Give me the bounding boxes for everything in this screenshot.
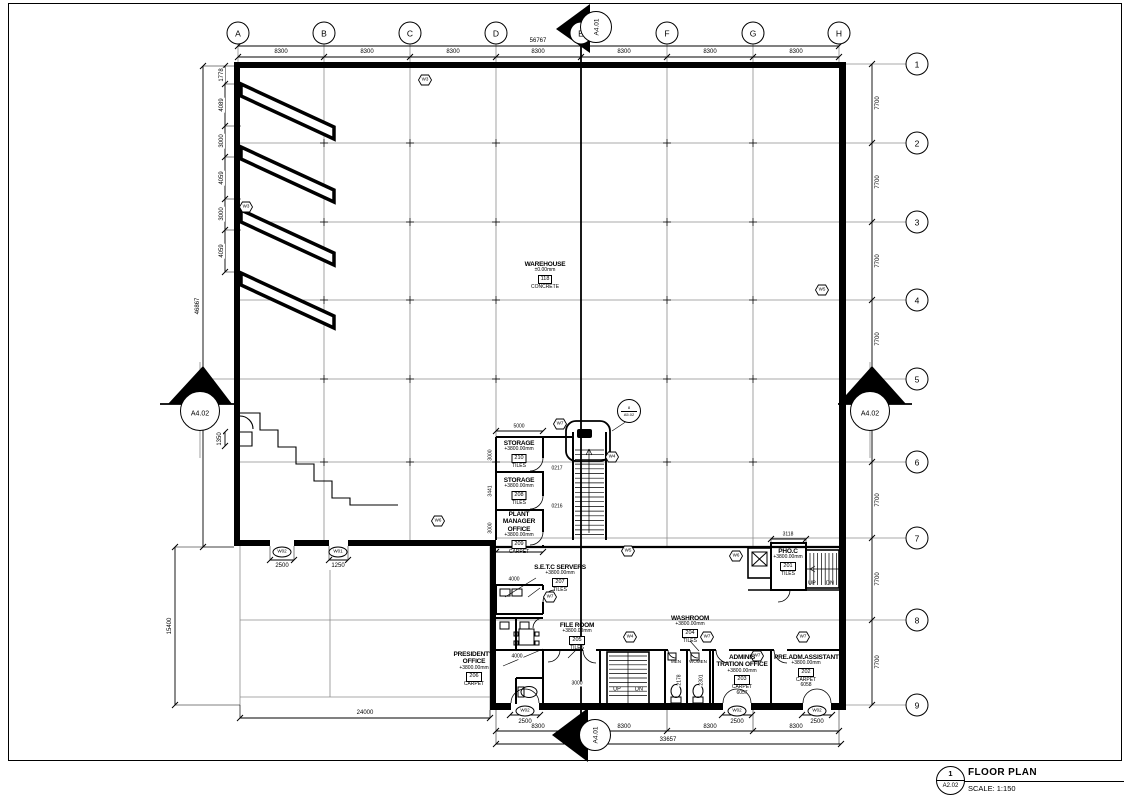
dimension-label: 8300 xyxy=(616,49,631,55)
dimension-label: 2301 xyxy=(700,673,705,686)
wall-type-label: W3 xyxy=(243,205,250,210)
grid-bubble-column: B xyxy=(313,22,336,45)
dimension-label: 7700 xyxy=(875,253,881,268)
grid-bubble-row: 2 xyxy=(906,132,929,155)
room-label-storage-210: STORAGE +3800.00mm 210 TILES xyxy=(496,440,543,469)
wall-type-label: W5 xyxy=(819,288,826,293)
room-number: 118 xyxy=(538,275,553,284)
wall-type-label: W3 xyxy=(422,78,429,83)
drawing-linework xyxy=(0,0,1130,811)
dimension-label: 0216 xyxy=(550,505,563,510)
wall-type-marker: W3 xyxy=(239,202,253,213)
dimension-label: 8300 xyxy=(359,49,374,55)
room-finish: TILES xyxy=(496,501,543,507)
wall-type-label: W6 xyxy=(435,519,442,524)
grid-row-label: 7 xyxy=(915,533,920,543)
wall-type-label: W7 xyxy=(547,595,554,600)
section-marker-right-label: A4.02 xyxy=(861,411,879,418)
wall-type-marker: W7 xyxy=(796,632,810,643)
women-washroom-label: WOMEN xyxy=(689,660,707,665)
room-name: PRESIDENT'S OFFICE xyxy=(451,651,497,666)
dimension-label: 0217 xyxy=(550,467,563,472)
stair-up-label: UP xyxy=(613,687,621,693)
dimension-label: 1350 xyxy=(217,431,223,446)
grid-column-label: B xyxy=(321,28,327,38)
door-tag: W01 xyxy=(329,547,348,558)
door-tag: W02 xyxy=(273,547,292,558)
wall-type-label: W5 xyxy=(625,549,632,554)
room-finish: TILES xyxy=(665,639,715,645)
room-label-phoc: PHO.C +3800.00mm 201 TILES xyxy=(770,548,806,577)
wall-type-label: W7 xyxy=(557,422,564,427)
section-marker-left-label: A4.02 xyxy=(191,411,209,418)
grid-column-label: F xyxy=(664,28,669,38)
grid-column-label: D xyxy=(493,28,499,38)
dimension-label: 7700 xyxy=(875,331,881,346)
grid-bubble-row: 7 xyxy=(906,527,929,550)
dimension-label: 46867 xyxy=(195,297,201,316)
room-label-pre-adm-assistant: PRE.ADM.ASSISTANT +3800.00mm 202 CARPET … xyxy=(774,654,838,689)
grid-bubble-row: 9 xyxy=(906,694,929,717)
grid-column-label: H xyxy=(836,28,842,38)
door-tag: W02 xyxy=(516,706,535,717)
room-finish: TILES xyxy=(552,646,602,652)
wall-type-label: W7 xyxy=(800,635,807,640)
wall-type-marker: W6 xyxy=(729,551,743,562)
dimension-label: 2500 xyxy=(729,719,744,725)
room-finish: TILES xyxy=(770,572,806,578)
dimension-label: 7700 xyxy=(875,492,881,507)
room-label-setc-servers: S.E.T.C SERVERS +3800.00mm 207 TILES xyxy=(531,564,589,593)
room-number: 210 xyxy=(511,454,526,463)
grid-bubble-row: 6 xyxy=(906,451,929,474)
grid-row-label: 1 xyxy=(915,59,920,69)
dimension-label: 33657 xyxy=(659,737,678,743)
drawing-title: FLOOR PLAN xyxy=(968,767,1037,778)
dimension-label: 3118 xyxy=(782,533,795,538)
wall-type-marker: W3 xyxy=(418,75,432,86)
grid-row-label: 4 xyxy=(915,295,920,305)
grid-bubble-row: 5 xyxy=(906,368,929,391)
door-tag: W02 xyxy=(728,706,747,717)
dimension-label: 8300 xyxy=(702,724,717,730)
grid-bubble-column: C xyxy=(399,22,422,45)
drawing-number: 1 xyxy=(937,767,964,781)
dimension-label: 8300 xyxy=(616,724,631,730)
room-number: 202 xyxy=(798,668,813,677)
grid-bubble-column: A xyxy=(227,22,250,45)
dimension-label: 8300 xyxy=(445,49,460,55)
wall-type-marker: W5 xyxy=(621,546,635,557)
dimension-label: 2178 xyxy=(678,673,683,686)
dimension-label: 8300 xyxy=(702,49,717,55)
stair-detail-callout: 8 A5.02 xyxy=(617,399,641,423)
grid-column-label: G xyxy=(750,28,757,38)
dimension-label: 3000 xyxy=(570,682,583,687)
room-carpet-code: 6057 xyxy=(716,691,768,697)
dimension-label: 1778 xyxy=(219,67,225,82)
room-number: 204 xyxy=(682,629,697,638)
room-label-storage-208: STORAGE +3800.00mm 208 TILES xyxy=(496,477,543,506)
dimension-label: 8300 xyxy=(273,49,288,55)
stair-up-label: UP xyxy=(808,581,816,587)
grid-row-label: 8 xyxy=(915,615,920,625)
grid-row-label: 6 xyxy=(915,457,920,467)
door-tag-label: W02 xyxy=(277,550,286,555)
floor-plan-sheet: ABCDEFGH 123456789 830083008300830083008… xyxy=(0,0,1130,811)
room-finish: CONCRETE xyxy=(515,285,575,291)
wall-type-label: W6 xyxy=(733,554,740,559)
grid-bubble-row: 3 xyxy=(906,211,929,234)
drawing-scale: SCALE: 1:150 xyxy=(968,784,1016,793)
room-finish: CARPET xyxy=(497,550,542,556)
dimension-label: 2500 xyxy=(809,719,824,725)
room-number: 209 xyxy=(511,540,526,549)
dimension-label: 56767 xyxy=(529,38,548,44)
grid-bubble-column: F xyxy=(656,22,679,45)
room-label-plant-manager-office: PLANT MANAGER OFFICE +3800.00mm 209 CARP… xyxy=(497,511,542,555)
grid-column-label: C xyxy=(407,28,413,38)
wall-type-marker: W4 xyxy=(605,452,619,463)
grid-bubble-column: D xyxy=(485,22,508,45)
dimension-label: 8300 xyxy=(530,724,545,730)
dimension-label: 4089 xyxy=(219,97,225,112)
dimension-label: 24000 xyxy=(356,710,375,716)
sheet-reference: A2.02 xyxy=(937,781,964,792)
room-finish: TILES xyxy=(531,588,589,594)
room-number: 208 xyxy=(511,491,526,500)
wall-type-label: W4 xyxy=(627,635,634,640)
dimension-label: 7700 xyxy=(875,571,881,586)
room-label-washroom: WASHROOM +3800.00mm 204 TILES xyxy=(665,615,715,644)
dimension-label: 4000 xyxy=(510,655,523,660)
door-tag-label: W01 xyxy=(333,550,342,555)
dimension-label: 4059 xyxy=(219,170,225,185)
grid-row-label: 9 xyxy=(915,700,920,710)
room-label-administration-office: ADMINIS TRATION OFFICE +3800.00mm 203 CA… xyxy=(716,654,768,697)
wall-type-marker: W5 xyxy=(815,285,829,296)
dimension-label: 3441 xyxy=(489,484,494,497)
door-tag-label: W02 xyxy=(812,709,821,714)
dimension-label: 8300 xyxy=(788,724,803,730)
door-tag-label: W02 xyxy=(520,709,529,714)
room-label-presidents-office: PRESIDENT'S OFFICE +3800.00mm 206 CARPET xyxy=(451,651,497,688)
dimension-label: 3000 xyxy=(219,133,225,148)
room-carpet-code: 6058 xyxy=(774,683,838,689)
grid-bubble-row: 1 xyxy=(906,53,929,76)
callout-sheet: A5.02 xyxy=(618,412,640,417)
dimension-label: 7700 xyxy=(875,95,881,110)
room-number: 201 xyxy=(780,562,795,571)
dimension-label: 5000 xyxy=(512,425,525,430)
grid-row-label: 3 xyxy=(915,217,920,227)
dimension-label: 15400 xyxy=(167,617,173,636)
wall-type-marker: W7 xyxy=(553,419,567,430)
dimension-label: 3000 xyxy=(489,448,494,461)
men-washroom-label: MEN xyxy=(671,660,681,665)
dimension-label: 3000 xyxy=(219,206,225,221)
room-label-file-room: FILE ROOM +3800.00mm 205 TILES xyxy=(552,622,602,651)
title-block: 1 A2.02 FLOOR PLAN SCALE: 1:150 xyxy=(930,763,1128,803)
room-number: 205 xyxy=(569,636,584,645)
dimension-label: 2500 xyxy=(274,563,289,569)
title-underline xyxy=(964,781,1124,782)
drawing-number-bubble: 1 A2.02 xyxy=(936,766,965,795)
room-finish: CARPET xyxy=(451,682,497,688)
grid-bubble-column: H xyxy=(828,22,851,45)
room-label-warehouse: WAREHOUSE ±0.00mm 118 CONCRETE xyxy=(515,261,575,290)
room-number: 207 xyxy=(552,578,567,587)
dimension-label: 7700 xyxy=(875,654,881,669)
stair-dn-label: DN xyxy=(635,687,643,693)
grid-bubble-column: G xyxy=(742,22,765,45)
dimension-label: 7700 xyxy=(875,174,881,189)
section-marker-bottom-label: A4.01 xyxy=(593,727,600,744)
dimension-label: 4059 xyxy=(219,243,225,258)
grid-column-label: A xyxy=(235,28,241,38)
grid-row-label: 5 xyxy=(915,374,920,384)
room-name: PLANT MANAGER OFFICE xyxy=(497,511,542,533)
wall-type-marker: W4 xyxy=(623,632,637,643)
door-tag: W02 xyxy=(808,706,827,717)
grid-bubble-row: 4 xyxy=(906,289,929,312)
grid-bubble-row: 8 xyxy=(906,609,929,632)
dimension-label: 8300 xyxy=(530,49,545,55)
stair-dn-label: DN xyxy=(826,581,834,587)
room-name: ADMINIS TRATION OFFICE xyxy=(716,654,768,669)
grid-row-label: 2 xyxy=(915,138,920,148)
dimension-label: 4000 xyxy=(507,578,520,583)
section-marker-top-label: A4.01 xyxy=(594,19,601,36)
dimension-label: 1250 xyxy=(330,563,345,569)
door-tag-label: W02 xyxy=(732,709,741,714)
room-finish: TILES xyxy=(496,464,543,470)
dimension-label: 3000 xyxy=(489,521,494,534)
dimension-label: 8300 xyxy=(788,49,803,55)
wall-type-marker: W6 xyxy=(431,516,445,527)
wall-type-label: W4 xyxy=(609,455,616,460)
